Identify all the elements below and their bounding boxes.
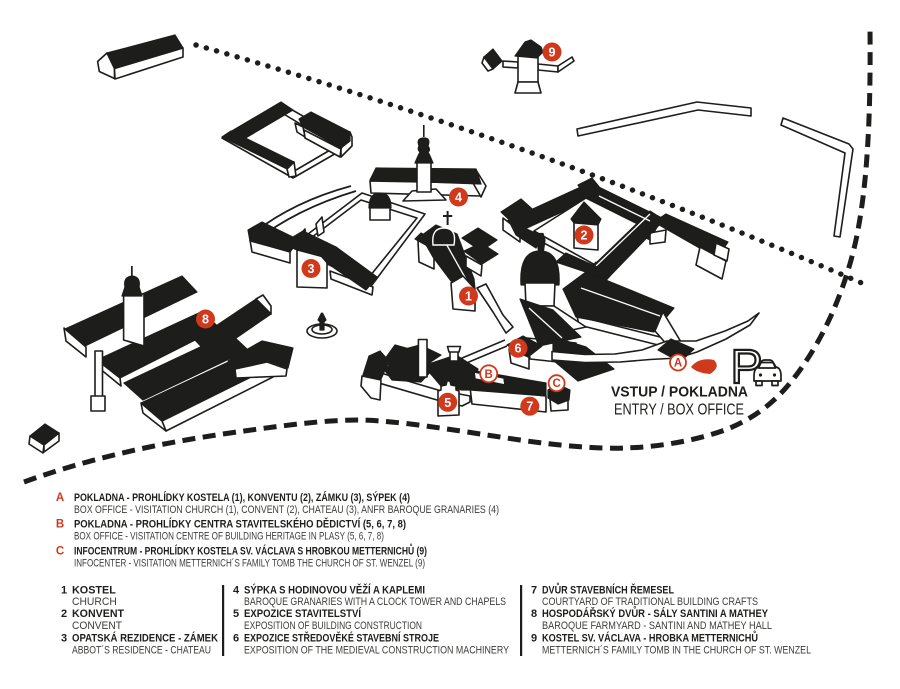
svg-text:KONVENT: KONVENT	[72, 608, 124, 620]
svg-text:CHURCH: CHURCH	[72, 596, 117, 608]
svg-text:EXPOZICE STŘEDOVĚKÉ STAVEBNÍ S: EXPOZICE STŘEDOVĚKÉ STAVEBNÍ STROJE	[244, 632, 439, 645]
svg-text:7: 7	[531, 584, 537, 596]
svg-text:B: B	[485, 369, 493, 381]
svg-text:SÝPKA S HODINOVOU VĚŽÍ A KAPLE: SÝPKA S HODINOVOU VĚŽÍ A KAPLEMI	[244, 583, 425, 596]
svg-text:9: 9	[549, 46, 556, 60]
svg-text:A: A	[674, 358, 682, 370]
svg-text:6: 6	[515, 342, 522, 356]
svg-text:BOX OFFICE - VISITATION CENTRE: BOX OFFICE - VISITATION CENTRE OF BUILDI…	[74, 531, 384, 543]
svg-text:4: 4	[455, 191, 462, 205]
svg-text:3: 3	[61, 633, 67, 645]
svg-text:8: 8	[202, 313, 209, 327]
svg-text:1: 1	[61, 584, 67, 596]
svg-text:POKLADNA - PROHLÍDKY KOSTELA (: POKLADNA - PROHLÍDKY KOSTELA (1), KONVEN…	[74, 491, 410, 504]
svg-text:5: 5	[233, 608, 239, 620]
svg-text:ENTRY / BOX OFFICE: ENTRY / BOX OFFICE	[614, 402, 744, 419]
svg-text:7: 7	[526, 400, 533, 414]
svg-text:EXPOZICE STAVITELSTVÍ: EXPOZICE STAVITELSTVÍ	[244, 607, 362, 620]
svg-text:A: A	[56, 492, 64, 504]
svg-text:BAROQUE GRANARIES WITH A CLOCK: BAROQUE GRANARIES WITH A CLOCK TOWER AND…	[244, 596, 506, 608]
svg-text:4: 4	[233, 584, 240, 596]
svg-text:DVŮR STAVEBNÍCH ŘEMESEL: DVŮR STAVEBNÍCH ŘEMESEL	[542, 582, 674, 596]
svg-text:B: B	[56, 519, 64, 531]
svg-text:INFOCENTER - VISITATION METTER: INFOCENTER - VISITATION METTERNICH´S FAM…	[74, 558, 425, 570]
svg-text:C: C	[552, 378, 560, 390]
svg-text:C: C	[56, 546, 64, 558]
svg-text:KOSTEL SV. VÁCLAVA - HROBKA ME: KOSTEL SV. VÁCLAVA - HROBKA METTERNICHŮ	[542, 631, 758, 645]
svg-text:1: 1	[465, 290, 472, 304]
svg-text:HOSPODÁŘSKÝ DVŮR - SÁLY SANTIN: HOSPODÁŘSKÝ DVŮR - SÁLY SANTINI A MATHEY	[542, 606, 768, 620]
svg-text:INFOCENTRUM - PROHLÍDKY KOSTEL: INFOCENTRUM - PROHLÍDKY KOSTELA SV. VÁCL…	[74, 544, 427, 558]
svg-text:METTERNICH´S FAMILY TOMB IN TH: METTERNICH´S FAMILY TOMB IN THE CHURCH O…	[542, 645, 811, 657]
svg-text:CONVENT: CONVENT	[72, 620, 122, 632]
svg-text:POKLADNA - PROHLÍDKY CENTRA ST: POKLADNA - PROHLÍDKY CENTRA STAVITELSKÉH…	[74, 518, 406, 531]
svg-text:KOSTEL: KOSTEL	[72, 584, 116, 596]
svg-text:2: 2	[61, 608, 67, 620]
svg-text:5: 5	[444, 396, 451, 410]
svg-text:COURTYARD OF TRADITIONAL BUILD: COURTYARD OF TRADITIONAL BUILDING CRAFTS	[542, 596, 758, 608]
svg-text:BAROQUE FARMYARD - SANTINI AND: BAROQUE FARMYARD - SANTINI AND MATHEY HA…	[542, 620, 772, 632]
svg-text:2: 2	[581, 229, 588, 243]
svg-text:ABBOT´S RESIDENCE - CHATEAU: ABBOT´S RESIDENCE - CHATEAU	[72, 645, 211, 657]
svg-text:EXPOSITION OF BUILDING CONSTRU: EXPOSITION OF BUILDING CONSTRUCTION	[244, 620, 422, 632]
svg-text:VSTUP / POKLADNA: VSTUP / POKLADNA	[611, 384, 748, 401]
svg-text:OPATSKÁ REZIDENCE - ZÁMEK: OPATSKÁ REZIDENCE - ZÁMEK	[72, 632, 219, 645]
svg-text:3: 3	[308, 262, 315, 276]
svg-text:EXPOSITION OF THE MEDIEVAL CON: EXPOSITION OF THE MEDIEVAL CONSTRUCTION …	[244, 645, 509, 657]
svg-text:9: 9	[531, 633, 537, 645]
svg-text:BOX OFFICE - VISITATION CHURCH: BOX OFFICE - VISITATION CHURCH (1), CONV…	[74, 504, 499, 516]
svg-text:6: 6	[233, 633, 239, 645]
svg-text:8: 8	[531, 608, 537, 620]
